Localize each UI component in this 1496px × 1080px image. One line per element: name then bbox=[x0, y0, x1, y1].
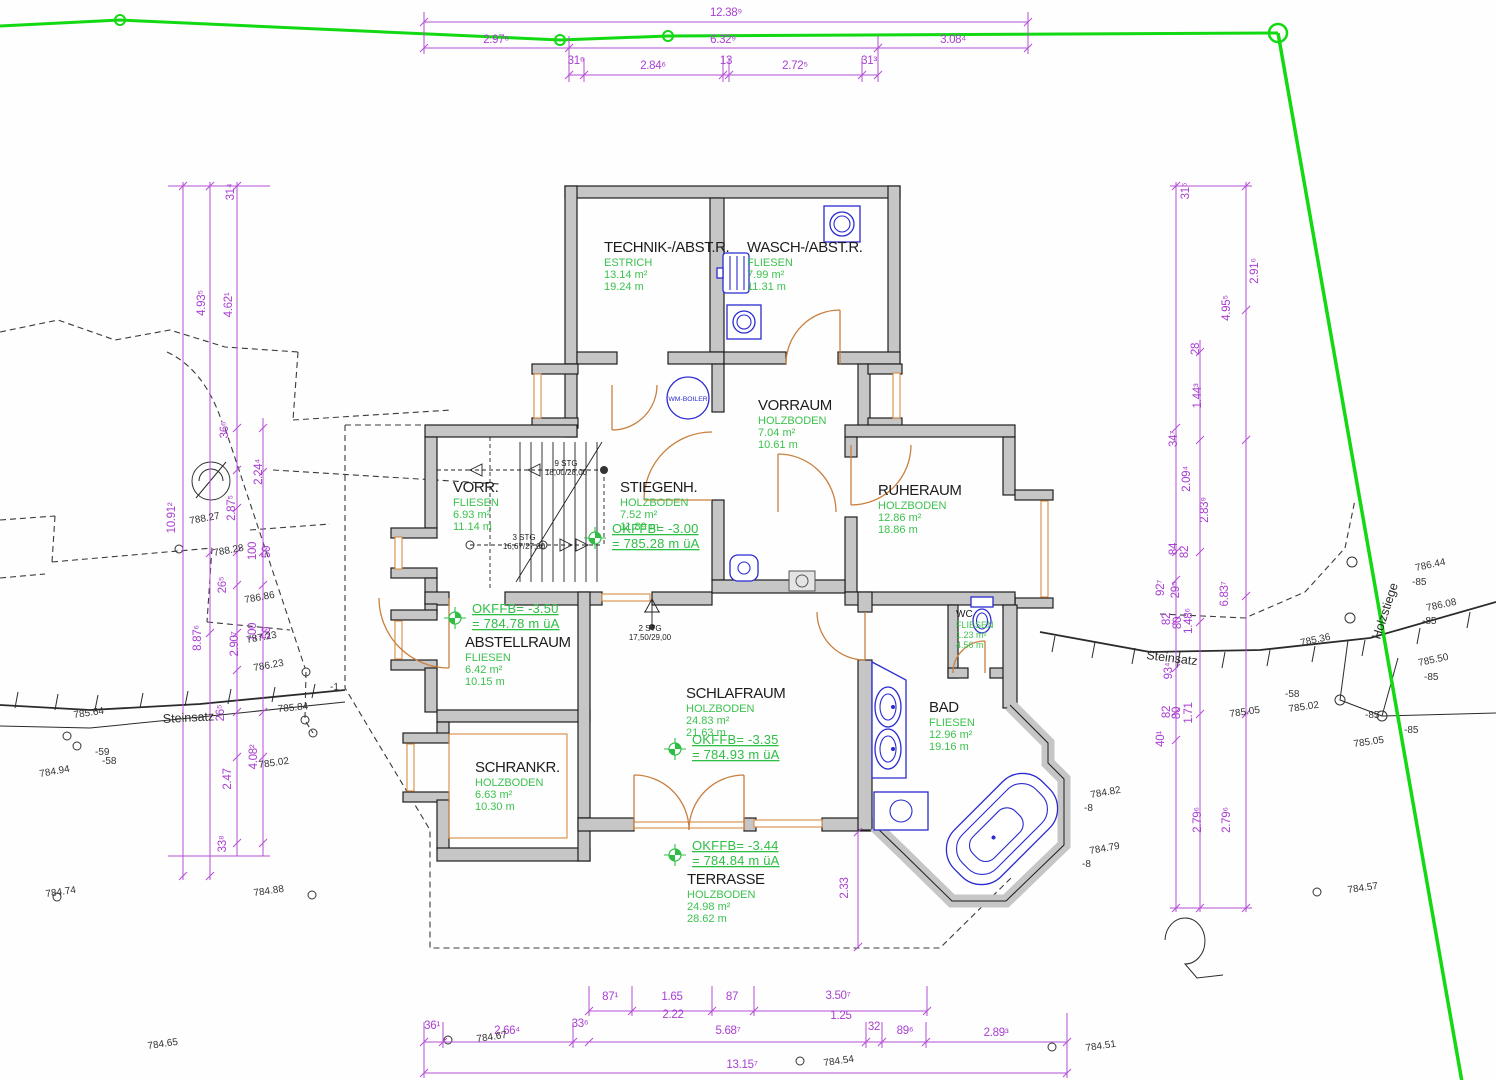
dimension: 89⁶ bbox=[897, 1025, 914, 1037]
stair-note: 9 STG bbox=[554, 459, 577, 468]
spot-height: 785.05 bbox=[1229, 705, 1261, 720]
spot-height: 785.05 bbox=[1353, 735, 1385, 750]
spot-height: 786.23 bbox=[253, 658, 285, 674]
dimension-line bbox=[420, 18, 1032, 26]
level-marker-text: OKFFB= -3.35 bbox=[692, 732, 779, 747]
door-vorraum bbox=[778, 454, 836, 512]
dimension: 3.50⁷ bbox=[825, 990, 850, 1002]
dimension: 2.83⁹ bbox=[1199, 497, 1211, 523]
room-perimeter: 19.16 m bbox=[929, 741, 969, 753]
dimension: 31⁴ bbox=[225, 183, 237, 200]
room-area: 6.93 m² bbox=[453, 509, 491, 521]
door-abstellraum bbox=[379, 598, 449, 668]
room-name: TECHNIK-/ABST.R. bbox=[604, 239, 729, 256]
room-floor: HOLZBODEN bbox=[687, 889, 756, 901]
spot-height: 784.57 bbox=[1347, 881, 1379, 896]
dimension: 2.89³ bbox=[984, 1027, 1009, 1039]
room-perimeter: 10.61 m bbox=[758, 439, 798, 451]
dimension: 2.87⁵ bbox=[226, 495, 238, 521]
spot-height: -1 bbox=[330, 682, 339, 693]
room-area: 12.86 m² bbox=[878, 512, 922, 524]
room-name: VORRAUM bbox=[758, 397, 832, 414]
dimension: 29⁵ bbox=[1170, 581, 1182, 598]
dimension: 1.25 bbox=[830, 1010, 851, 1022]
dimension: 6.83⁷ bbox=[1219, 581, 1231, 606]
spot-height: -8 bbox=[1084, 803, 1093, 814]
room-floor: HOLZBODEN bbox=[475, 777, 544, 789]
dimension: 36¹ bbox=[424, 1020, 440, 1032]
stair-note: 3 STG bbox=[512, 533, 535, 542]
dimension: 3.08⁴ bbox=[940, 34, 966, 46]
room-name: STIEGENH. bbox=[620, 479, 697, 496]
room-area: 6.42 m² bbox=[465, 664, 503, 676]
dimension: 2.33 bbox=[839, 877, 851, 898]
dimension: 87¹ bbox=[602, 991, 618, 1003]
dimension: 26⁵ bbox=[217, 576, 229, 593]
spot-height: 784.67 bbox=[476, 1030, 508, 1045]
dimension: 12.38⁹ bbox=[710, 7, 742, 19]
dimension: 5.68⁷ bbox=[715, 1025, 740, 1037]
dimension: 6.32⁹ bbox=[710, 34, 736, 46]
room-name: RUHERAUM bbox=[878, 482, 961, 499]
dimension-line bbox=[420, 1038, 1071, 1046]
level-marker-icon bbox=[664, 738, 686, 760]
dimension: 2.24⁴ bbox=[253, 459, 265, 485]
spot-height: 784.88 bbox=[253, 884, 285, 899]
room-area: 7.99 m² bbox=[747, 269, 785, 281]
room-floor: FLIESEN bbox=[453, 497, 499, 509]
dimension: 4.62¹ bbox=[223, 292, 235, 317]
window-icon bbox=[395, 537, 402, 569]
room-area: 1.23 m² bbox=[956, 630, 987, 640]
door-technik bbox=[612, 385, 657, 430]
tap-icon bbox=[717, 268, 723, 278]
dimension: 31⁶ bbox=[568, 55, 585, 67]
room-name: WC bbox=[956, 609, 973, 620]
spot-height: 784.94 bbox=[39, 764, 71, 780]
dimension: 32 bbox=[868, 1021, 880, 1033]
dimension: 82 bbox=[1179, 546, 1191, 558]
spot-height: 784.54 bbox=[823, 1054, 855, 1069]
spot-height: 786.86 bbox=[244, 590, 276, 606]
level-marker-text: = 785.28 m üA bbox=[612, 536, 700, 551]
dimension-line bbox=[206, 182, 214, 880]
dimension: 2.47 bbox=[222, 768, 234, 789]
room-perimeter: 10.30 m bbox=[475, 801, 515, 813]
spot-height: 784.74 bbox=[45, 885, 77, 900]
dimension: 2.97⁶ bbox=[483, 34, 509, 46]
spot-height: -85 bbox=[1422, 616, 1437, 627]
door-wasch bbox=[786, 310, 840, 364]
dimension: 1.44³ bbox=[1192, 383, 1204, 408]
dimension-line bbox=[585, 1007, 931, 1015]
stair-note: 16,67/27,00 bbox=[503, 542, 546, 551]
labels-layer: TECHNIK-/ABST.R.ESTRICH13.14 m²19.24 mWA… bbox=[39, 7, 1458, 1071]
site-label: Steinsatz bbox=[162, 709, 214, 726]
dimension: 2.84⁶ bbox=[640, 60, 666, 72]
dimension: 4.95⁵ bbox=[1221, 295, 1233, 321]
dimension: 13 bbox=[720, 55, 732, 67]
dimension-line bbox=[179, 182, 187, 880]
window-icon bbox=[395, 621, 402, 659]
stair-note: 17,50/29,00 bbox=[629, 633, 672, 642]
room-floor: HOLZBODEN bbox=[620, 497, 689, 509]
dimension: 80 bbox=[1171, 707, 1183, 719]
dimension: 28 bbox=[1190, 343, 1202, 355]
dimension: 26⁵ bbox=[215, 704, 227, 721]
room-name: ABSTELLRAUM bbox=[465, 634, 571, 651]
dimension: 13.15⁷ bbox=[726, 1059, 757, 1071]
room-perimeter: 4.56 m bbox=[956, 640, 984, 650]
room-floor: HOLZBODEN bbox=[758, 415, 827, 427]
room-perimeter: 19.24 m bbox=[604, 281, 644, 293]
level-marker-text: OKFFB= -3.50 bbox=[472, 601, 559, 616]
spot-height: 788.27 bbox=[189, 511, 221, 527]
dimension: 100 bbox=[247, 542, 259, 560]
room-perimeter: 10.15 m bbox=[465, 676, 505, 688]
room-perimeter: 11.14 m bbox=[453, 521, 492, 533]
dimension: 8.87⁶ bbox=[192, 625, 204, 651]
dimension: 31³ bbox=[861, 55, 877, 67]
bathtub-icon bbox=[935, 762, 1069, 896]
stair-note: 18,00/28,00 bbox=[545, 468, 588, 477]
room-name: VORR. bbox=[453, 479, 499, 496]
dimension: 2.79⁶ bbox=[1221, 807, 1233, 833]
dimension: 87 bbox=[726, 991, 738, 1003]
level-marker-text: = 784.93 m üA bbox=[692, 747, 780, 762]
room-floor: FLIESEN bbox=[747, 257, 793, 269]
dimension: 4.93⁵ bbox=[196, 290, 208, 316]
dimension: 92⁷ bbox=[1155, 580, 1167, 596]
room-floor: FLIESEN bbox=[956, 620, 994, 630]
room-name: BAD bbox=[929, 699, 959, 716]
spot-height: 785.84 bbox=[277, 701, 309, 715]
dimension: 50 bbox=[261, 546, 273, 558]
spot-height: 785.02 bbox=[1288, 700, 1320, 715]
shaft-icon bbox=[789, 571, 815, 591]
spot-height: 786.44 bbox=[1414, 557, 1447, 574]
spot-height: 785.36 bbox=[1299, 632, 1332, 649]
dimension: 1.65 bbox=[661, 991, 682, 1003]
spot-height: 784.79 bbox=[1089, 841, 1121, 857]
level-marker-text: OKFFB= -3.00 bbox=[612, 521, 699, 536]
spot-height: 784.82 bbox=[1090, 785, 1122, 801]
room-area: 7.52 m² bbox=[620, 509, 658, 521]
window-icon bbox=[407, 744, 414, 791]
spot-height: 785.64 bbox=[73, 706, 105, 721]
equipment-label: WM-BOILER bbox=[668, 396, 707, 403]
spot-height: -85 bbox=[1424, 672, 1439, 683]
dimension: 1.48⁶ bbox=[1183, 608, 1195, 634]
spot-height: -58 bbox=[1285, 689, 1300, 700]
dimension-line bbox=[1242, 182, 1250, 912]
dimension: 2.90⁷ bbox=[229, 631, 241, 656]
spot-height: 788.28 bbox=[213, 543, 245, 559]
dimension: 2.72⁵ bbox=[782, 60, 808, 72]
level-marker-icon bbox=[664, 844, 686, 866]
room-area: 12.96 m² bbox=[929, 729, 973, 741]
spot-height: -85 bbox=[1365, 710, 1380, 721]
dimension: 34⁷ bbox=[1168, 431, 1180, 447]
window-icon bbox=[534, 374, 541, 418]
room-name: WASCH-/ABST.R. bbox=[747, 239, 863, 256]
window-icon bbox=[893, 373, 900, 418]
dimension: 2.09⁴ bbox=[1181, 466, 1193, 492]
stair-note: 2 STG bbox=[638, 624, 661, 633]
room-name: SCHRANKR. bbox=[475, 759, 560, 776]
room-perimeter: 18.86 m bbox=[878, 524, 918, 536]
level-marker-text: = 784.84 m üA bbox=[692, 853, 780, 868]
room-floor: HOLZBODEN bbox=[686, 703, 755, 715]
dimension: 2.22 bbox=[662, 1009, 683, 1021]
spot-height: 784.65 bbox=[147, 1037, 179, 1052]
room-perimeter: 11.31 m bbox=[747, 281, 786, 293]
window-icon bbox=[754, 820, 822, 827]
spot-height: 784.51 bbox=[1085, 1039, 1117, 1054]
room-area: 13.14 m² bbox=[604, 269, 648, 281]
room-area: 7.04 m² bbox=[758, 427, 796, 439]
dimension: 10.91² bbox=[166, 502, 178, 533]
floor-plan-drawing: TECHNIK-/ABST.R.ESTRICH13.14 m²19.24 mWA… bbox=[0, 0, 1496, 1080]
room-floor: HOLZBODEN bbox=[878, 500, 947, 512]
room-area: 24.83 m² bbox=[686, 715, 730, 727]
dimension: 31⁶ bbox=[1180, 182, 1192, 199]
dimension-line bbox=[854, 828, 862, 951]
dimension: 2.79⁶ bbox=[1192, 807, 1204, 833]
room-perimeter: 28.62 m bbox=[687, 913, 727, 925]
level-marker-text: = 784.78 m üA bbox=[472, 616, 560, 631]
level-marker-icon bbox=[444, 607, 466, 629]
room-floor: FLIESEN bbox=[465, 652, 511, 664]
level-marker-text: OKFFB= -3.44 bbox=[692, 838, 779, 853]
spot-height: -85 bbox=[1404, 725, 1419, 736]
spot-height: 786.08 bbox=[1425, 597, 1458, 614]
sink-icon bbox=[723, 253, 749, 293]
floor-plan-canvas: TECHNIK-/ABST.R.ESTRICH13.14 m²19.24 mWA… bbox=[0, 0, 1496, 1080]
basin-icon bbox=[730, 555, 758, 581]
room-area: 6.63 m² bbox=[475, 789, 513, 801]
dimension: 2.91⁶ bbox=[1249, 258, 1261, 284]
window-icon bbox=[602, 594, 650, 601]
dimension: 33⁸ bbox=[217, 835, 229, 852]
spot-height: -58 bbox=[102, 756, 117, 767]
dimension: 1.71 bbox=[1183, 702, 1195, 723]
spot-height: -85 bbox=[1412, 577, 1427, 588]
wc-toilet-icon bbox=[971, 597, 993, 607]
door-bad bbox=[817, 612, 865, 660]
room-name: SCHLAFRAUM bbox=[686, 685, 785, 702]
spot-height: 785.50 bbox=[1417, 652, 1450, 669]
room-floor: ESTRICH bbox=[604, 257, 652, 269]
dimension: 33⁶ bbox=[572, 1018, 589, 1030]
window-icon bbox=[1041, 501, 1048, 597]
room-name: TERRASSE bbox=[687, 871, 765, 888]
shower-icon bbox=[874, 792, 928, 830]
spot-height: -8 bbox=[1082, 859, 1091, 870]
room-floor: FLIESEN bbox=[929, 717, 975, 729]
dimension: 40¹ bbox=[1155, 731, 1167, 747]
room-area: 24.98 m² bbox=[687, 901, 731, 913]
dimension: 36⁶ bbox=[219, 421, 231, 438]
